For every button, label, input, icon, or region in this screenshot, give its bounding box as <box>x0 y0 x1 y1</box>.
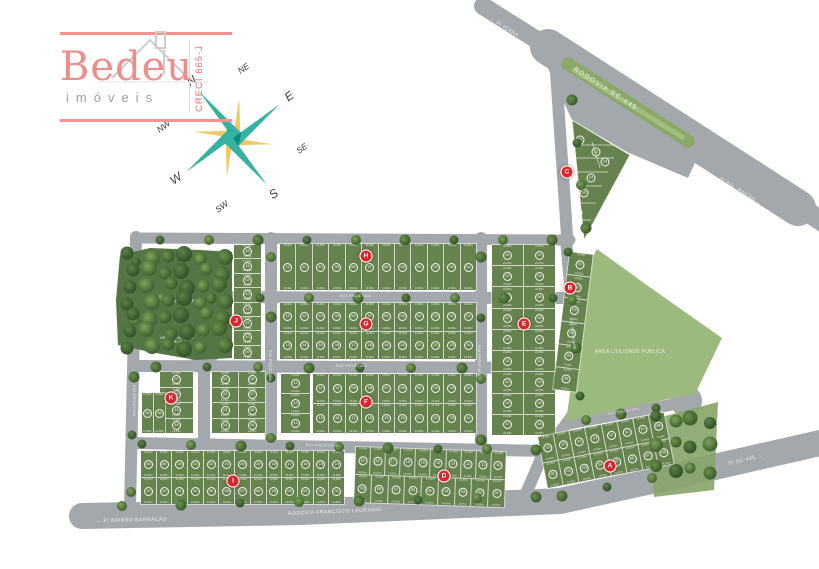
lot: 13,00m2313,00m <box>443 404 459 433</box>
lot: 14,00m1414,00m <box>212 419 238 434</box>
lot-number: 06 <box>561 374 571 384</box>
block-badge-I: I <box>228 476 239 487</box>
lot: 13,00m0313,00m <box>443 374 459 403</box>
compass-point-S: S <box>266 186 281 202</box>
lot-number: 03 <box>503 272 512 281</box>
lot-number: 02 <box>563 466 574 477</box>
lot-number: 06 <box>535 293 544 302</box>
lot-number: 20 <box>238 460 247 469</box>
tree-icon <box>704 417 716 429</box>
lot: 12,00m2312,00m <box>187 451 203 477</box>
lot: 23,45m0423,45m <box>523 266 555 286</box>
lot-number: 07 <box>238 487 247 496</box>
lot-number: 05 <box>269 487 278 496</box>
lot-number: 01 <box>575 259 585 269</box>
tree-icon <box>684 441 697 454</box>
tree-icon <box>406 363 416 373</box>
lot-number: 13 <box>283 341 292 350</box>
tree-icon <box>651 411 662 422</box>
lot: 12,00m1812,00m <box>266 451 282 477</box>
lot-number: 10 <box>494 461 503 470</box>
tree-icon <box>703 437 718 452</box>
lot-number: 14 <box>535 378 544 387</box>
lot: 12,00m1312,00m <box>141 478 156 504</box>
lot-number: 03 <box>447 384 456 393</box>
lot-number: 13 <box>144 487 153 496</box>
lot-number: 01 <box>464 312 473 321</box>
lot-number: 01 <box>503 251 512 260</box>
tree-icon <box>581 415 591 425</box>
lot-number: 04 <box>415 312 424 321</box>
lot-number: 09 <box>349 384 358 393</box>
lot: 15,00m0115,00m <box>567 252 593 277</box>
lot-number: 15 <box>316 460 325 469</box>
lot-number: 08 <box>365 384 374 393</box>
tree-icon <box>127 308 140 321</box>
lot-number: 10 <box>638 424 649 435</box>
lot: 13,00m1813,00m <box>361 404 377 433</box>
lot: 14,00m0314,00m <box>454 478 472 506</box>
lot-number: 20 <box>398 341 407 350</box>
tree-icon <box>211 320 227 336</box>
lot-number: 01 <box>548 469 559 480</box>
lot: 23,45m1223,45m <box>523 351 555 371</box>
lot: 13,00m1013,00m <box>312 303 328 331</box>
lot: 14,00m1014,00m <box>490 452 506 480</box>
lot: 13,00m0613,00m <box>378 244 394 290</box>
lot-number: 07 <box>365 263 374 272</box>
tree-icon <box>200 307 213 320</box>
tree-icon <box>499 293 510 304</box>
lot-number: 02 <box>464 384 473 393</box>
lot: 14,00m1114,00m <box>475 451 491 479</box>
lot-number: 06 <box>254 487 263 496</box>
lot-number: 03 <box>569 305 579 315</box>
road-label-barracao: ← P/ BAIRRO BARRACÃO <box>96 517 167 524</box>
lot: 14,00m1314,00m <box>212 403 238 418</box>
tree-icon <box>205 293 216 304</box>
lot: 13,00m2013,00m <box>394 332 410 360</box>
lot-number: 08 <box>375 485 384 494</box>
tree-icon <box>669 464 683 478</box>
lot-number: 03 <box>458 488 467 497</box>
lot-number: 16 <box>332 341 341 350</box>
lot: 14,00m0114,00m <box>212 372 238 387</box>
tree-icon <box>413 495 422 504</box>
compass-point-W: W <box>167 168 186 187</box>
lot-number: 10 <box>535 335 544 344</box>
lot: 13,00m0613,00m <box>378 303 394 331</box>
block-badge-F: F <box>361 397 372 408</box>
plat-map: 13,00m1213,00m13,00m1113,00m13,00m1013,0… <box>0 0 819 569</box>
lot: 13,00m1213,00m <box>281 374 310 393</box>
lot-number: 23 <box>447 414 456 423</box>
tree-icon <box>567 295 577 305</box>
lot-number: 22 <box>431 341 440 350</box>
tree-icon <box>128 430 137 439</box>
tree-icon <box>162 250 175 263</box>
tree-icon <box>576 392 585 401</box>
lot: 13,00m0913,00m <box>328 303 344 331</box>
tree-icon <box>128 372 139 383</box>
lot: 13,00m0113,00m <box>460 244 476 290</box>
tree-icon <box>127 264 140 277</box>
lot-number: 14 <box>587 174 596 183</box>
lot-number: 04 <box>415 263 424 272</box>
lot-number: 15 <box>558 440 569 451</box>
tree-icon <box>482 444 492 454</box>
lot: 13,00m0213,00m <box>443 244 459 290</box>
lot-number: 14 <box>433 459 442 468</box>
lot: 12,00m2012,00m <box>234 451 250 477</box>
lot-number: 04 <box>535 272 544 281</box>
lot: 13,00m0913,00m <box>328 244 344 290</box>
lot-number: 05 <box>564 351 574 361</box>
lot: 13,00m0513,00m <box>394 244 410 290</box>
lot-number: 16 <box>333 414 342 423</box>
lot-number: 11 <box>503 357 512 366</box>
tree-icon <box>186 440 196 450</box>
lot: 13,00m2413,00m <box>460 332 476 360</box>
block-F: 13,00m1113,00m13,00m1013,00m13,00m0913,0… <box>313 374 476 433</box>
tree-icon <box>285 442 294 451</box>
lot-number: 21 <box>415 341 424 350</box>
area-label-util-right: ÁREA UTILIDADE PÚBLICA <box>595 349 665 355</box>
tree-icon <box>211 276 227 292</box>
street-name-label: RUA PROJETADA <box>340 294 372 298</box>
lot-number: 16 <box>574 209 583 218</box>
lot: 13,00m1213,00m <box>280 303 295 331</box>
compass-point-SW: SW <box>213 198 231 215</box>
lot: 14,00m0714,00m <box>160 372 193 387</box>
lot: 13,00m1313,00m <box>281 394 310 413</box>
lot: 12,00m0112,00m <box>328 478 344 504</box>
lot-number: 19 <box>382 414 391 423</box>
lot-number: 07 <box>643 450 654 461</box>
lot: 13,00m0913,00m <box>345 374 361 403</box>
lot: 12,00m0612,00m <box>250 478 266 504</box>
lot-number: 36 <box>143 409 152 418</box>
lot-number: 12 <box>160 487 169 496</box>
tree-icon <box>477 314 486 323</box>
lot-number: 13 <box>503 378 512 387</box>
tree-icon <box>303 236 312 245</box>
lot-number: 10 <box>316 263 325 272</box>
lot: 23,45m1023,45m <box>523 330 555 350</box>
lot-number: 23 <box>191 460 200 469</box>
lot-number: 17 <box>349 341 358 350</box>
lot: 23,45m0223,45m <box>523 245 555 265</box>
lot: 13,00m1413,00m <box>234 274 261 287</box>
lot: 13,00m0713,00m <box>378 374 394 403</box>
lot-number: 15 <box>316 414 325 423</box>
lot: 12,00m2612,00m <box>141 451 156 477</box>
lot: 13,00m1913,00m <box>378 404 394 433</box>
lot-number: 17 <box>503 420 512 429</box>
lot: 13,00m2013,00m <box>394 404 410 433</box>
lot-number: 12 <box>464 460 473 469</box>
lot-number: 23 <box>447 341 456 350</box>
lot-number: 18 <box>535 420 544 429</box>
lot-number: 06 <box>627 453 638 464</box>
lot-number: 02 <box>447 263 456 272</box>
tree-icon <box>138 440 147 449</box>
lot: 12,00m1512,00m <box>313 451 329 477</box>
tree-icon <box>498 235 508 245</box>
lot-number: 07 <box>503 314 512 323</box>
block-I: 12,00m2612,00m12,00m2512,00m12,00m2412,0… <box>141 451 344 504</box>
lot-number: 04 <box>285 487 294 496</box>
lot-number: 05 <box>415 384 424 393</box>
lot: 14,00m0814,00m <box>370 476 388 504</box>
lot: 14,00m1914,00m <box>355 447 370 474</box>
lot-number: 02 <box>447 312 456 321</box>
lot: 13,00m0513,00m <box>394 303 410 331</box>
lot: 12,00m2512,00m <box>156 451 172 477</box>
tree-icon <box>685 463 696 474</box>
lot-number: 11 <box>316 384 325 393</box>
lot-number: 15 <box>503 399 512 408</box>
lot: 13,00m0413,00m <box>410 303 426 331</box>
street-name-label: RUA PROJETADA <box>477 345 481 377</box>
lot: 13,00m0813,00m <box>345 303 361 331</box>
lot: 13,00m1513,00m <box>234 259 261 272</box>
tree-icon <box>217 249 233 265</box>
block-Kg: 14,00m0114,00m14,00m1814,00m14,00m1214,0… <box>212 372 265 433</box>
lot: 13,00m1613,00m <box>328 332 344 360</box>
tree-icon <box>603 483 612 492</box>
tree-icon <box>203 363 212 372</box>
lot-number: 14 <box>574 437 585 448</box>
tree-icon <box>266 252 276 262</box>
lot: 13,00m0913,00m <box>234 346 261 359</box>
tree-icon <box>217 293 233 309</box>
lot-number: 09 <box>358 484 367 493</box>
lot: 12,00m0212,00m <box>313 478 329 504</box>
lot-number: 18 <box>365 341 374 350</box>
lot-number: 06 <box>382 263 391 272</box>
block-badge-K: K <box>166 393 177 404</box>
block-badge-D: D <box>439 471 450 482</box>
lot-number: 07 <box>382 384 391 393</box>
lot-number: 22 <box>207 460 216 469</box>
lot-number: 18 <box>365 414 374 423</box>
lot-number: 08 <box>349 263 358 272</box>
lot-number: 11 <box>622 427 633 438</box>
block-badge-B: B <box>565 283 576 294</box>
lot-number: 10 <box>333 384 342 393</box>
street-name-label: RUA PROJETADA <box>336 364 368 368</box>
lot-number: 06 <box>382 312 391 321</box>
lot-number: 11 <box>300 263 309 272</box>
tree-icon <box>197 280 210 293</box>
lot: 14,00m1814,00m <box>238 372 265 387</box>
lot-number: 17 <box>349 414 358 423</box>
lot-number: 18 <box>373 457 382 466</box>
tree-icon <box>400 235 411 246</box>
tree-icon <box>450 293 460 303</box>
tree-icon <box>236 499 245 508</box>
tree-icon <box>255 294 264 303</box>
lot-number: 12 <box>283 263 292 272</box>
lot-number: 09 <box>653 421 664 432</box>
lot: 14,00m1614,00m <box>399 449 415 477</box>
lot: 23,45m1123,45m <box>492 351 523 371</box>
lot-number: 03 <box>431 312 440 321</box>
lot-number: 22 <box>431 414 440 423</box>
lot-number: 02 <box>535 251 544 260</box>
compass-point-SE: SE <box>294 141 309 156</box>
lot-number: 17 <box>285 460 294 469</box>
tree-icon <box>304 362 315 373</box>
tree-icon <box>402 294 411 303</box>
brand-name: Bedeu <box>60 44 193 90</box>
lot: 13,00m2213,00m <box>427 332 443 360</box>
lot: 23,45m1423,45m <box>523 372 555 392</box>
lot-number: 13 <box>448 459 457 468</box>
brand-tagline: imóveis <box>66 90 159 105</box>
street-name-label: RUA PROJETADA <box>306 443 338 448</box>
lot: 13,00m2313,00m <box>443 332 459 360</box>
lot: 13,00m1613,00m <box>328 404 344 433</box>
lot-number: 11 <box>300 312 309 321</box>
lot: 13,00m1013,00m <box>328 374 344 403</box>
lot-number: 05 <box>398 263 407 272</box>
lot: 13,00m1013,00m <box>234 331 261 344</box>
tree-icon <box>351 235 361 245</box>
tree-icon <box>217 337 233 353</box>
lot: 12,00m2412,00m <box>171 451 187 477</box>
lot-number: 12 <box>291 379 300 388</box>
lot: 23,45m1323,45m <box>492 372 523 392</box>
tree-icon <box>650 460 662 472</box>
lot: 12,00m2112,00m <box>218 451 234 477</box>
tree-icon <box>173 307 189 323</box>
lot: 12,00m2212,00m <box>203 451 219 477</box>
lot: 12,00m1912,00m <box>250 451 266 477</box>
tree-icon <box>126 487 136 497</box>
lot-number: 04 <box>442 487 451 496</box>
lot-number: 12 <box>283 312 292 321</box>
lot: 13,00m1113,00m <box>295 303 311 331</box>
tree-icon <box>547 235 558 246</box>
lot-number: 21 <box>222 460 231 469</box>
lot-number: 24 <box>464 341 473 350</box>
block-E: 23,45m0123,45m23,45m0223,45m23,45m0323,4… <box>492 245 555 435</box>
tree-icon <box>144 338 160 354</box>
tree-icon <box>564 248 573 257</box>
tree-icon <box>176 246 192 262</box>
tree-icon <box>173 263 189 279</box>
tree-icon <box>531 492 542 503</box>
lot-number: 15 <box>316 341 325 350</box>
lot-number: 08 <box>222 487 231 496</box>
logo-bottom-bar <box>60 119 232 122</box>
lot-number: 20 <box>398 414 407 423</box>
lot-number: 12 <box>606 430 617 441</box>
lot: 13,00m0313,00m <box>427 303 443 331</box>
lot-number: 25 <box>160 460 169 469</box>
tree-icon <box>457 363 468 374</box>
lot-number: 11 <box>479 460 488 469</box>
lot: 13,00m1413,00m <box>281 414 310 433</box>
lot-number: 11 <box>175 487 184 496</box>
lot: 13,00m0113,00m <box>460 303 476 331</box>
tree-icon <box>121 247 134 260</box>
lot: 14,00m0414,00m <box>437 478 455 506</box>
lot: 12,00m1712,00m <box>281 451 297 477</box>
tree-icon <box>450 236 459 245</box>
lot-number: 16 <box>403 458 412 467</box>
tree-icon <box>162 294 175 307</box>
tree-icon <box>176 290 192 306</box>
lot-number: 15 <box>418 458 427 467</box>
lot-number: 13 <box>291 399 300 408</box>
lot-number: 01 <box>464 263 473 272</box>
tree-icon <box>121 342 134 355</box>
tree-icon <box>383 442 394 453</box>
lot-number: 05 <box>398 312 407 321</box>
tree-icon <box>176 499 187 510</box>
street-name-label: RUA PROJETADA <box>268 350 272 382</box>
tree-icon <box>670 415 683 428</box>
lot-number: 06 <box>398 384 407 393</box>
brand-logo: Bedeu imóveis CRECI 665-J <box>58 26 243 128</box>
lot: 23,45m0123,45m <box>492 245 523 265</box>
tree-icon <box>294 497 304 507</box>
lot: 12,48m3512,48m <box>153 393 165 433</box>
tree-icon <box>581 223 592 234</box>
lot-number: 13 <box>590 434 601 445</box>
lot: 12,00m1612,00m <box>297 451 313 477</box>
lot: 13,00m1313,00m <box>280 332 295 360</box>
lot: 14,00m0714,00m <box>387 476 405 504</box>
tree-icon <box>353 495 364 506</box>
tree-icon <box>197 324 210 337</box>
lot-number: 24 <box>464 414 473 423</box>
lot-number: 03 <box>301 487 310 496</box>
tree-icon <box>159 311 172 324</box>
lot-number: 09 <box>207 487 216 496</box>
lot-number: 18 <box>269 460 278 469</box>
lot: 23,45m0923,45m <box>492 330 523 350</box>
block-G: 13,00m1213,00m13,00m1113,00m13,00m1013,0… <box>280 303 476 359</box>
tree-icon <box>649 438 663 452</box>
lot-number: 21 <box>415 414 424 423</box>
lot-number: 09 <box>503 335 512 344</box>
lot-number: 26 <box>144 460 153 469</box>
tree-icon <box>576 180 586 190</box>
creci-number: CRECI 665-J <box>194 38 205 112</box>
lot-number: 10 <box>191 487 200 496</box>
block-H: 13,00m1213,00m13,00m1113,00m13,00m1013,0… <box>280 244 476 290</box>
lot-number: 08 <box>535 314 544 323</box>
block-badge-J: J <box>231 316 242 327</box>
lot-number: 12 <box>592 148 601 157</box>
tree-icon <box>179 324 195 340</box>
lot-number: 12 <box>535 357 544 366</box>
lot-number: 16 <box>301 460 310 469</box>
lot-number: 19 <box>382 341 391 350</box>
lot: 13,00m1013,00m <box>312 244 328 290</box>
lot-number: 09 <box>332 312 341 321</box>
lot: 15,00m0615,00m <box>553 367 579 392</box>
tree-icon <box>304 293 314 303</box>
lot-number: 14 <box>300 341 309 350</box>
block-Ks: 12,48m3612,48m12,48m3512,48m <box>142 393 165 433</box>
block-badge-C: C <box>562 167 573 178</box>
lot-number: 03 <box>579 463 590 474</box>
